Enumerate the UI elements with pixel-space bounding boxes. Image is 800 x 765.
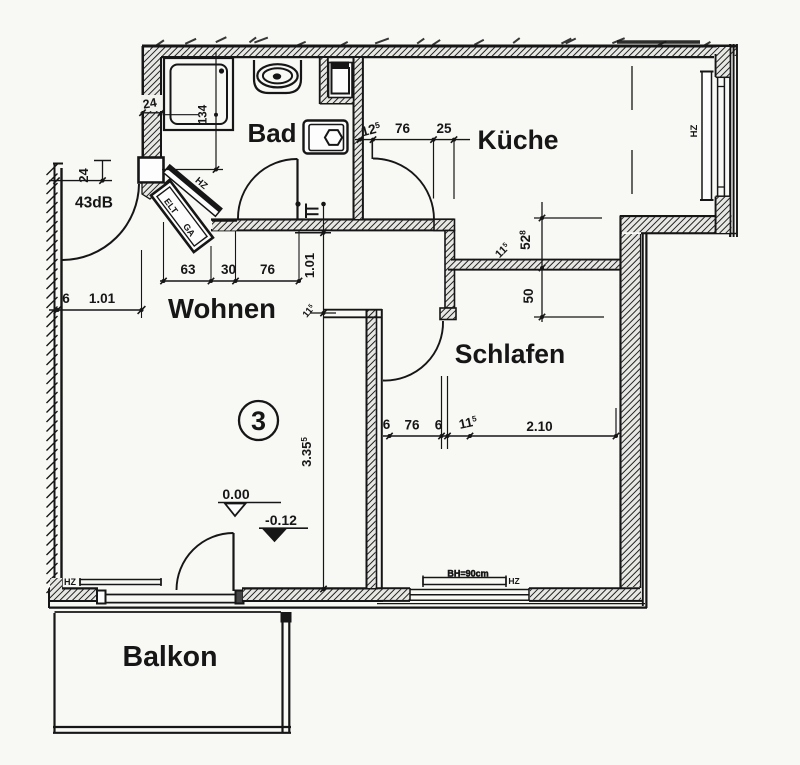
svg-text:6: 6 [435, 418, 443, 433]
svg-text:1.01: 1.01 [89, 291, 116, 306]
svg-text:Bad: Bad [247, 118, 296, 148]
svg-text:6: 6 [383, 417, 391, 432]
svg-text:2.10: 2.10 [526, 419, 552, 434]
svg-text:HZ: HZ [508, 576, 519, 586]
svg-text:Balkon: Balkon [122, 641, 217, 673]
svg-text:63: 63 [180, 262, 196, 277]
svg-text:43dB: 43dB [75, 195, 113, 212]
svg-text:HZ: HZ [689, 124, 700, 137]
svg-text:24: 24 [76, 168, 91, 183]
svg-text:76: 76 [260, 262, 276, 277]
svg-text:1.01: 1.01 [302, 253, 317, 278]
svg-text:HZ: HZ [64, 577, 76, 587]
svg-text:30: 30 [221, 262, 236, 277]
svg-text:6: 6 [62, 291, 70, 306]
svg-text:Küche: Küche [478, 125, 559, 155]
svg-text:BH=90cm: BH=90cm [447, 569, 488, 579]
svg-text:76: 76 [395, 121, 411, 136]
svg-text:25: 25 [436, 121, 452, 136]
svg-text:50: 50 [521, 288, 536, 303]
svg-text:Wohnen: Wohnen [168, 293, 276, 324]
svg-text:0.00: 0.00 [222, 486, 249, 502]
svg-text:134: 134 [198, 104, 210, 124]
svg-text:Schlafen: Schlafen [455, 339, 565, 369]
svg-text:-0.12: -0.12 [265, 512, 297, 528]
svg-text:76: 76 [404, 418, 420, 433]
svg-text:3: 3 [251, 406, 266, 436]
svg-text:24: 24 [142, 95, 158, 111]
